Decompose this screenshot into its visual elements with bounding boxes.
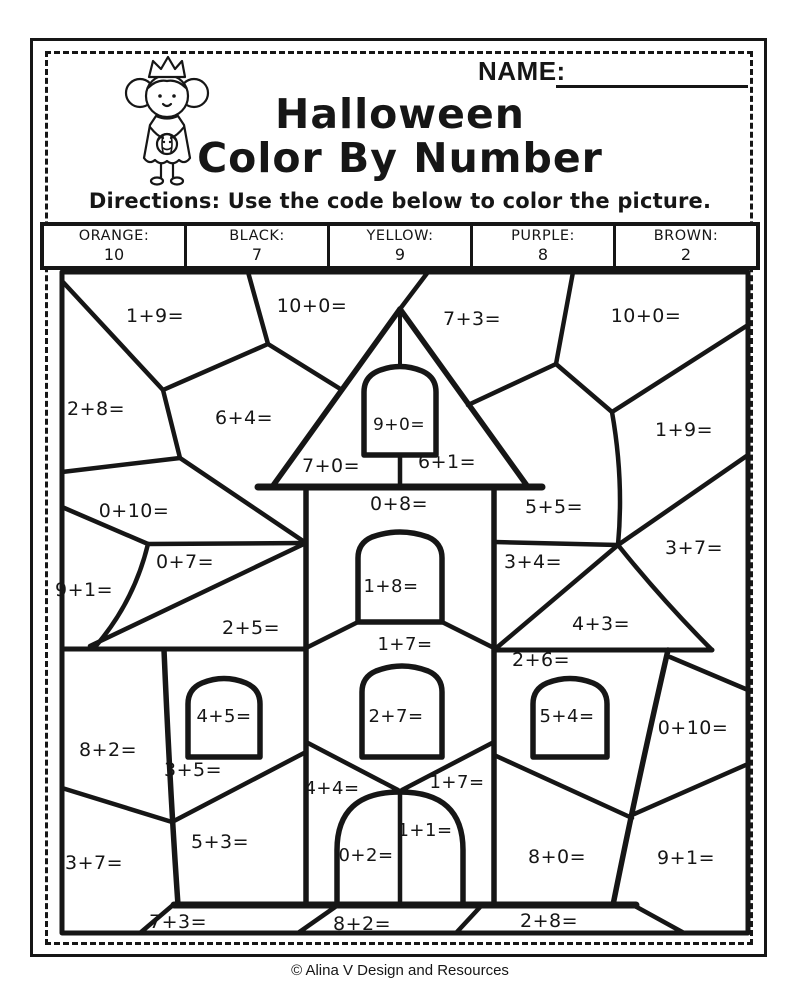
page-title-line1: Halloween (0, 90, 800, 138)
code-color-name: YELLOW: (367, 227, 434, 245)
name-input-line[interactable] (556, 85, 748, 88)
code-color-number: 9 (395, 245, 405, 265)
code-color-name: ORANGE: (79, 227, 149, 245)
code-cell-black: BLACK:7 (187, 226, 330, 266)
code-cell-brown: BROWN:2 (616, 226, 756, 266)
code-color-number: 2 (681, 245, 691, 265)
color-code-table: ORANGE:10BLACK:7YELLOW:9PURPLE:8BROWN:2 (40, 222, 760, 270)
code-cell-yellow: YELLOW:9 (330, 226, 473, 266)
crown (149, 57, 185, 77)
directions-text: Directions: Use the code below to color … (0, 189, 800, 213)
code-color-name: BROWN: (654, 227, 719, 245)
page-title-line2: Color By Number (0, 134, 800, 182)
code-color-number: 8 (538, 245, 548, 265)
code-color-number: 10 (104, 245, 124, 265)
code-color-number: 7 (252, 245, 262, 265)
code-cell-purple: PURPLE:8 (473, 226, 616, 266)
copyright-footer: © Alina V Design and Resources (0, 962, 800, 979)
code-color-name: BLACK: (229, 227, 285, 245)
code-color-name: PURPLE: (511, 227, 575, 245)
worksheet-page: NAME: Halloween Color By Number Directio… (0, 0, 800, 1000)
code-cell-orange: ORANGE:10 (44, 226, 187, 266)
name-label: NAME: (478, 56, 566, 86)
